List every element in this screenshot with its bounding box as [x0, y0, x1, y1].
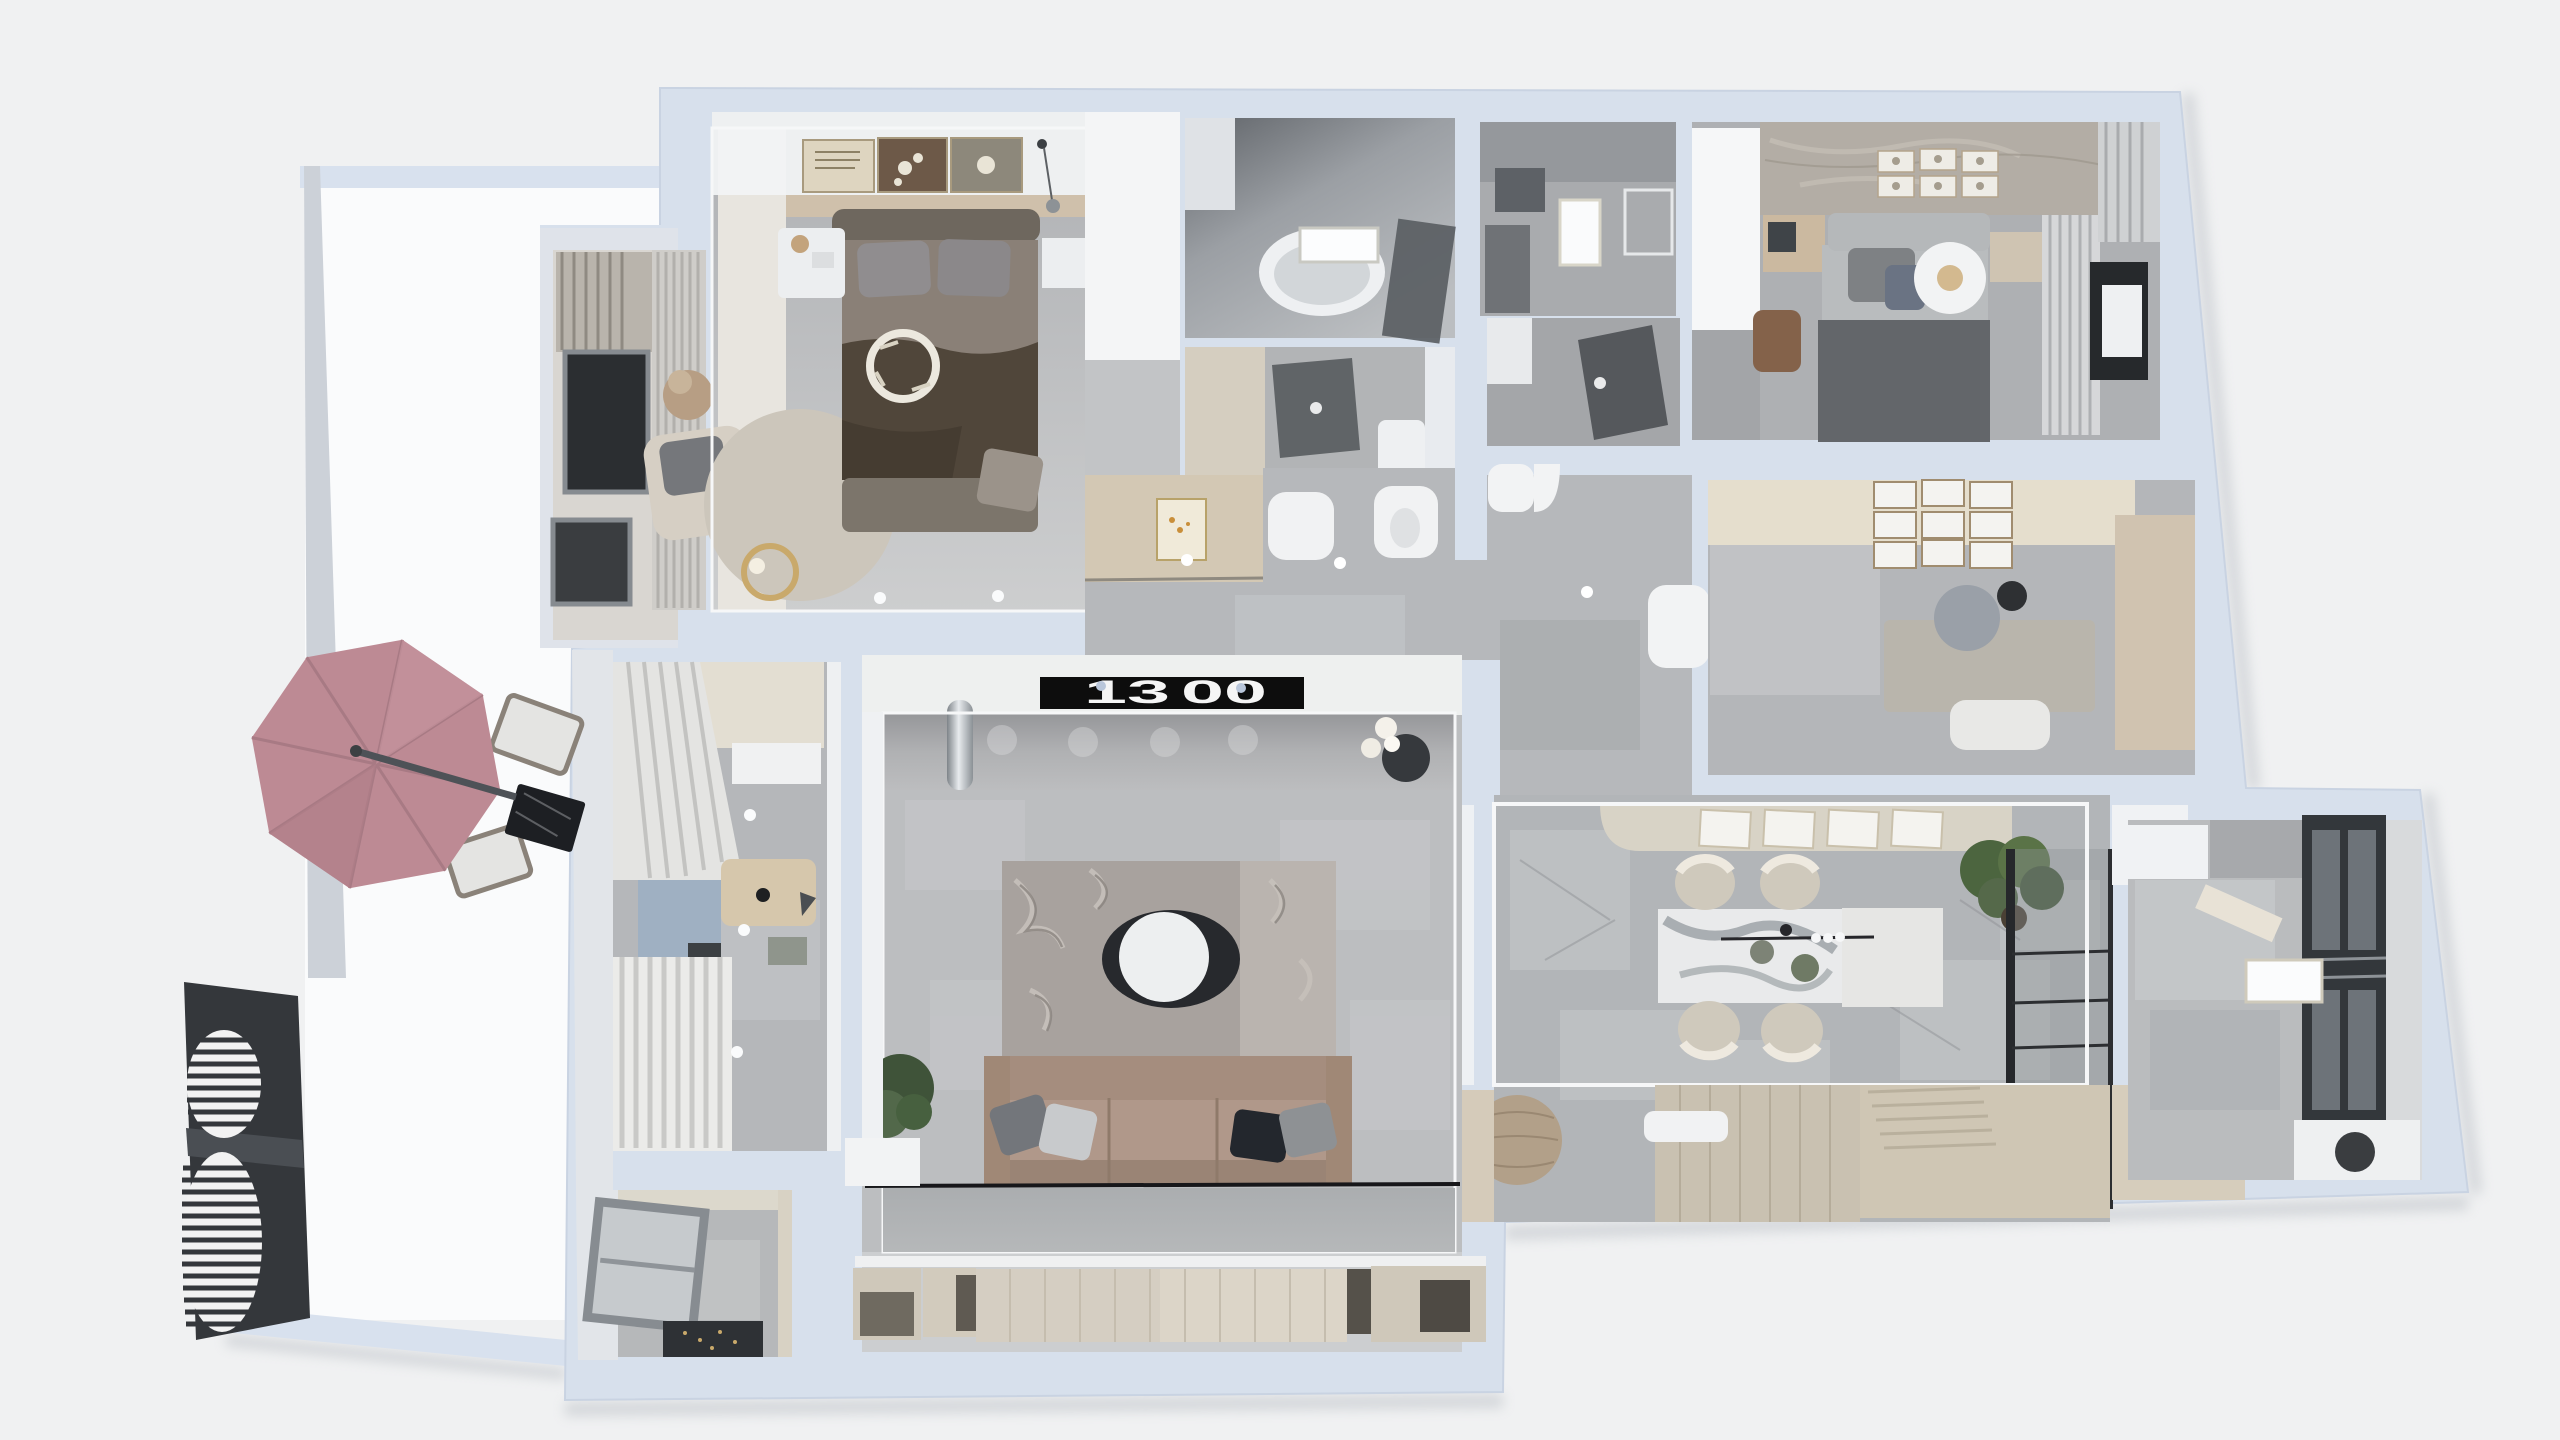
svg-text:00: 00 [1181, 674, 1267, 710]
svg-text:13: 13 [1084, 674, 1170, 710]
